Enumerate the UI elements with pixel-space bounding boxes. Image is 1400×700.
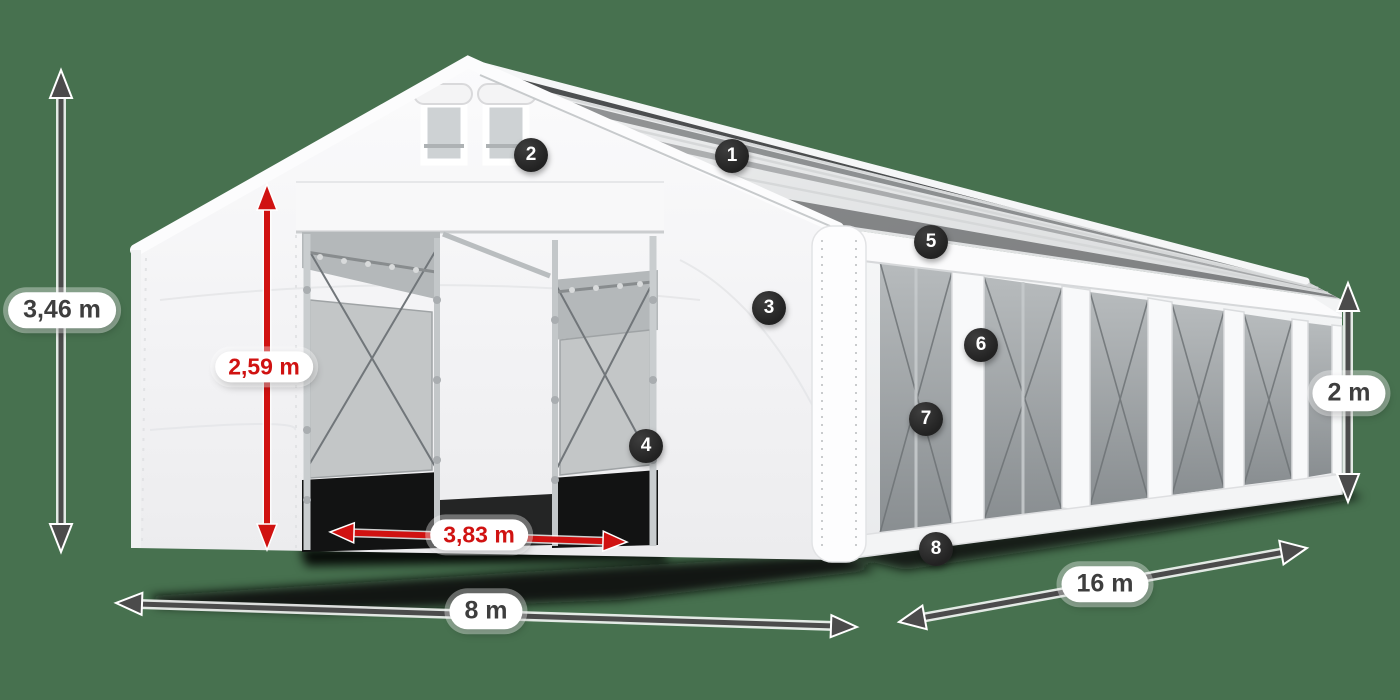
- callout-badge-1[interactable]: 1: [715, 139, 749, 173]
- dimension-label-entrance-width: 3,83 m: [430, 519, 528, 550]
- callout-badge-3[interactable]: 3: [752, 291, 786, 325]
- callout-badge-4[interactable]: 4: [629, 429, 663, 463]
- tent-illustration: [0, 0, 1400, 700]
- corner-post: [812, 226, 866, 562]
- dimension-label-entrance-height: 2,59 m: [215, 351, 313, 382]
- door-right-opening: [551, 236, 658, 548]
- callout-badge-2[interactable]: 2: [514, 138, 548, 172]
- callout-badge-6[interactable]: 6: [964, 328, 998, 362]
- dimension-label-total-height: 3,46 m: [8, 292, 116, 328]
- dimension-label-side-height: 2 m: [1312, 375, 1385, 411]
- callout-badge-7[interactable]: 7: [909, 402, 943, 436]
- dimension-label-tent-width: 8 m: [449, 593, 522, 629]
- tent-dimension-diagram: 3,46 m 2,59 m 3,83 m 8 m 16 m 2 m 1 2 3 …: [0, 0, 1400, 700]
- dimension-label-tent-length: 16 m: [1062, 566, 1149, 602]
- callout-badge-5[interactable]: 5: [914, 225, 948, 259]
- entrance-header: [296, 180, 664, 232]
- callout-badge-8[interactable]: 8: [919, 532, 953, 566]
